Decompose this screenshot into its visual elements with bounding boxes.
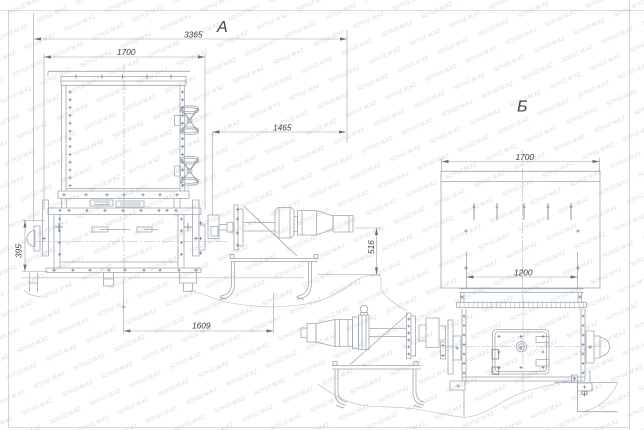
svg-text:1200: 1200 xyxy=(514,268,533,278)
svg-text:1700: 1700 xyxy=(516,152,535,162)
svg-text:Б: Б xyxy=(517,99,527,116)
svg-text:516: 516 xyxy=(366,240,376,254)
svg-text:1609: 1609 xyxy=(192,321,211,331)
svg-text:3365: 3365 xyxy=(184,30,203,40)
svg-text:А: А xyxy=(216,19,228,36)
svg-text:1700: 1700 xyxy=(117,47,136,57)
svg-text:1465: 1465 xyxy=(273,123,292,133)
svg-text:395: 395 xyxy=(14,244,24,258)
